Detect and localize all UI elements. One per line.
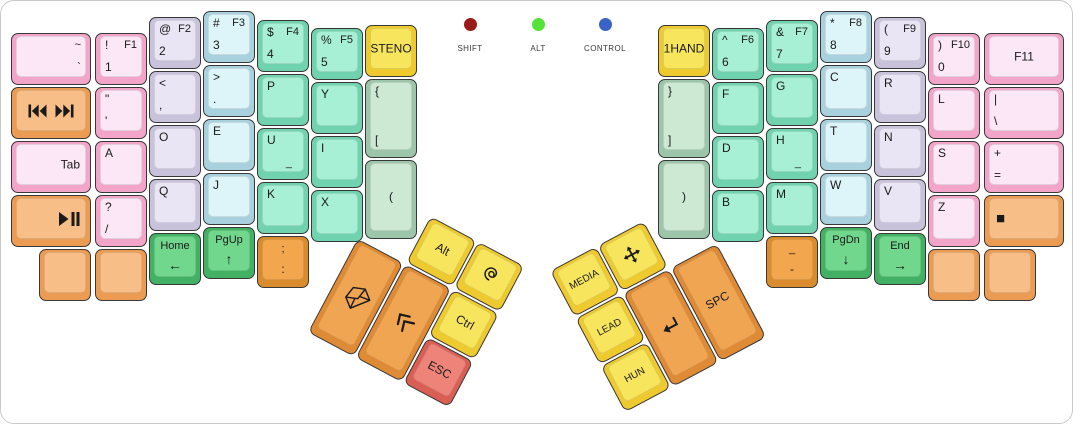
key-1-label: 1 <box>105 61 112 74</box>
key-c-cap: C <box>825 68 867 109</box>
control-led-icon <box>599 18 612 31</box>
key-rparen-cap: ) <box>663 163 705 231</box>
key-pgup-cap: PgUp↑ <box>208 230 250 271</box>
key-c[interactable]: C <box>820 65 872 117</box>
key-slash-label: / <box>105 223 108 236</box>
key-comma-label: , <box>159 99 162 112</box>
key-v-label: V <box>884 185 892 198</box>
key-alt-cap: Alt <box>414 221 470 277</box>
key-w-label: W <box>830 179 841 192</box>
key-4[interactable]: $F44 <box>257 20 309 72</box>
key-h-cap: H_ <box>771 131 813 172</box>
debian-swirl-icon <box>477 262 503 288</box>
key-k-label: K <box>267 188 275 201</box>
key-spc-label: SPC <box>703 289 731 312</box>
key-u-cap: U_ <box>262 131 304 172</box>
key-media-label: MEDIA <box>567 267 600 292</box>
key-super-cap <box>462 247 518 303</box>
key-m[interactable]: M <box>766 182 818 234</box>
key-apostrophe-label: " <box>105 93 109 106</box>
key-4-label: $ <box>267 26 274 39</box>
key-end-label: → <box>893 258 907 273</box>
key-pgdn-label: PgDn <box>832 234 860 246</box>
key-7[interactable]: &F77 <box>766 20 818 72</box>
indicator-control-label: CONTROL <box>570 44 640 53</box>
key-u-label: _ <box>286 157 292 169</box>
key-1-cap: !F11 <box>100 36 142 77</box>
key-z-label: Z <box>938 201 945 214</box>
key-5-label: 5 <box>321 56 328 69</box>
key-z[interactable]: Z <box>928 195 980 247</box>
key-q[interactable]: Q <box>149 179 201 231</box>
key-m-label: M <box>776 188 786 201</box>
key-1-label: F1 <box>124 39 137 51</box>
key-steno-label: STENO <box>370 42 411 55</box>
key-f11-label: F11 <box>1014 50 1034 63</box>
key-x-label: X <box>321 196 329 209</box>
key-pgdn-cap: PgDn↓ <box>825 230 867 271</box>
key-6[interactable]: ^F66 <box>712 28 764 80</box>
key-pgdn[interactable]: PgDn↓ <box>820 227 872 279</box>
key-blank-r1[interactable] <box>928 249 980 301</box>
key-m-cap: M <box>771 185 813 226</box>
key-6-cap: ^F66 <box>717 31 759 72</box>
double-chevron-icon <box>389 306 419 336</box>
key-rbrace[interactable]: }] <box>658 79 710 158</box>
key-home-cap: Home← <box>154 236 196 277</box>
key-t[interactable]: T <box>820 119 872 171</box>
key-home-label: Home <box>160 240 189 252</box>
key-1hand[interactable]: 1HAND <box>658 25 710 77</box>
key-pgdn-label: ↓ <box>843 252 850 267</box>
key-n-cap: N <box>879 128 921 169</box>
key-underscore-label: - <box>790 263 794 276</box>
key-u-label: U <box>267 134 276 147</box>
key-0-label: 0 <box>938 61 945 74</box>
key-apostrophe[interactable]: "' <box>95 87 147 139</box>
key-v[interactable]: V <box>874 179 926 231</box>
key-6-label: 6 <box>722 56 729 69</box>
key-equals-cap: += <box>989 144 1059 185</box>
key-play-pause-cap <box>16 198 86 239</box>
enter-return-icon <box>658 315 682 337</box>
key-lparen[interactable]: ( <box>365 160 417 239</box>
key-f[interactable]: F <box>712 82 764 134</box>
key-apostrophe-cap: "' <box>100 90 142 131</box>
key-blank-l2-cap <box>100 252 142 293</box>
key-0-cap: )F100 <box>933 36 975 77</box>
key-t-label: T <box>830 125 837 138</box>
key-0-label: ) <box>938 39 942 52</box>
key-end-label: End <box>890 240 910 252</box>
key-1[interactable]: !F11 <box>95 33 147 85</box>
key-2-label: @ <box>159 23 171 36</box>
key-rparen-label: ) <box>682 190 686 203</box>
key-j-label: J <box>213 179 219 192</box>
key-g-cap: G <box>771 77 813 118</box>
key-e-label: E <box>213 125 221 138</box>
key-2[interactable]: @F22 <box>149 17 201 69</box>
key-o-cap: O <box>154 128 196 169</box>
key-0[interactable]: )F100 <box>928 33 980 85</box>
key-d-label: D <box>722 142 731 155</box>
key-2-label: F2 <box>178 23 191 35</box>
key-i-cap: I <box>316 139 358 180</box>
key-backslash-cap: |\ <box>989 90 1059 131</box>
key-j[interactable]: J <box>203 173 255 225</box>
key-steno[interactable]: STENO <box>365 25 417 77</box>
key-home[interactable]: Home← <box>149 233 201 285</box>
key-blank-l2[interactable] <box>95 249 147 301</box>
key-f-label: F <box>722 88 729 101</box>
key-i-label: I <box>321 142 324 155</box>
alt-led-icon <box>532 18 545 31</box>
key-o[interactable]: O <box>149 125 201 177</box>
key-h-label: _ <box>795 157 801 169</box>
envelope-icon <box>341 281 372 310</box>
key-s[interactable]: S <box>928 141 980 193</box>
key-d[interactable]: D <box>712 136 764 188</box>
key-6-label: ^ <box>722 34 728 47</box>
key-9-cap: (F99 <box>879 20 921 61</box>
key-tab[interactable]: Tab <box>11 141 91 193</box>
key-3-label: 3 <box>213 39 220 52</box>
key-rbrace-cap: }] <box>663 82 705 150</box>
key-1hand-label: 1HAND <box>664 42 705 55</box>
key-n[interactable]: N <box>874 125 926 177</box>
key-rbrace-label: } <box>668 85 672 98</box>
key-h[interactable]: H_ <box>766 128 818 180</box>
key-5-label: F5 <box>340 34 353 46</box>
key-comma-label: < <box>159 77 166 90</box>
key-l-cap: L <box>933 90 975 131</box>
key-backslash-label: | <box>994 93 997 106</box>
key-grave-cap: ~` <box>16 36 86 77</box>
key-end[interactable]: End→ <box>874 233 926 285</box>
key-media-prev-next-icons <box>29 104 74 117</box>
key-media-cap: MEDIA <box>556 252 612 308</box>
key-b-label: B <box>722 196 730 209</box>
key-3-label: F3 <box>232 17 245 29</box>
key-ctrl-label: Ctrl <box>454 312 477 332</box>
key-period[interactable]: >. <box>203 65 255 117</box>
key-tab-cap: Tab <box>16 144 86 185</box>
key-x-cap: X <box>316 193 358 234</box>
key-3-cap: #F33 <box>208 14 250 55</box>
key-y[interactable]: Y <box>311 82 363 134</box>
key-0-label: F10 <box>951 39 970 51</box>
next-track-icon <box>56 104 74 117</box>
indicator-alt: ALT <box>503 18 573 53</box>
key-backslash[interactable]: |\ <box>984 87 1064 139</box>
move-icon <box>619 241 645 267</box>
key-lead-label: LEAD <box>595 316 623 338</box>
key-stop-label: ■ <box>996 210 1005 227</box>
key-1hand-cap: 1HAND <box>663 28 705 69</box>
key-semicolon-cap: ;: <box>262 239 304 280</box>
key-2-label: 2 <box>159 45 166 58</box>
key-period-label: > <box>213 71 220 84</box>
key-a-cap: A <box>100 144 142 185</box>
key-underscore-label: _ <box>789 243 795 255</box>
key-7-label: & <box>776 26 784 39</box>
key-lbrace-label: { <box>375 85 379 98</box>
key-blank-r1-cap <box>933 252 975 293</box>
key-4-cap: $F44 <box>262 23 304 64</box>
key-move-cap <box>604 226 660 282</box>
key-l[interactable]: L <box>928 87 980 139</box>
key-s-cap: S <box>933 144 975 185</box>
key-slash-cap: ?/ <box>100 198 142 239</box>
key-t-cap: T <box>825 122 867 163</box>
key-stop[interactable]: ■ <box>984 195 1064 247</box>
key-p[interactable]: P <box>257 74 309 126</box>
key-g-label: G <box>776 80 785 93</box>
key-comma[interactable]: <, <box>149 71 201 123</box>
key-9-label: 9 <box>884 45 891 58</box>
key-6-label: F6 <box>741 34 754 46</box>
key-v-cap: V <box>879 182 921 223</box>
key-underscore-cap: _- <box>771 239 813 280</box>
key-2-cap: @F22 <box>154 20 196 61</box>
indicator-shift: SHIFT <box>435 18 505 53</box>
indicator-alt-label: ALT <box>503 44 573 53</box>
key-f11-cap: F11 <box>989 36 1059 77</box>
key-equals-label: + <box>994 147 1001 160</box>
key-7-cap: &F77 <box>771 23 813 64</box>
key-r-cap: R <box>879 74 921 115</box>
key-8[interactable]: *F88 <box>820 11 872 63</box>
key-blank-l1[interactable] <box>39 249 91 301</box>
key-tab-label: Tab <box>61 158 80 171</box>
key-h-label: H <box>776 134 785 147</box>
key-equals[interactable]: += <box>984 141 1064 193</box>
key-end-cap: End→ <box>879 236 921 277</box>
key-period-label: . <box>213 93 216 106</box>
indicator-control: CONTROL <box>570 18 640 53</box>
key-hun-label: HUN <box>623 365 647 385</box>
key-grave-label: ` <box>77 61 81 74</box>
key-backslash-label: \ <box>994 115 997 128</box>
key-k[interactable]: K <box>257 182 309 234</box>
key-8-label: F8 <box>849 17 862 29</box>
key-e[interactable]: E <box>203 119 255 171</box>
key-n-label: N <box>884 131 893 144</box>
key-lbrace-cap: {[ <box>370 82 412 150</box>
key-media-prev-next[interactable] <box>11 87 91 139</box>
key-pgup-label: ↑ <box>226 252 233 267</box>
key-c-label: C <box>830 71 839 84</box>
key-slash-label: ? <box>105 201 112 214</box>
key-i[interactable]: I <box>311 136 363 188</box>
key-lparen-cap: ( <box>370 163 412 231</box>
key-x[interactable]: X <box>311 190 363 242</box>
key-lbrace-label: [ <box>375 134 378 147</box>
key-esc-label: ESC <box>426 358 454 381</box>
key-u[interactable]: U_ <box>257 128 309 180</box>
key-g[interactable]: G <box>766 74 818 126</box>
key-blank-r2-cap <box>989 252 1031 293</box>
key-7-label: 7 <box>776 48 783 61</box>
key-s-label: S <box>938 147 946 160</box>
key-8-label: * <box>830 17 835 30</box>
key-b-cap: B <box>717 193 759 234</box>
key-r-label: R <box>884 77 893 90</box>
key-y-cap: Y <box>316 85 358 126</box>
key-4-label: F4 <box>286 26 299 38</box>
key-5-label: % <box>321 34 332 47</box>
key-1-label: ! <box>105 39 108 52</box>
key-a-label: A <box>105 147 113 160</box>
key-q-label: Q <box>159 185 168 198</box>
key-k-cap: K <box>262 185 304 226</box>
key-b[interactable]: B <box>712 190 764 242</box>
key-period-cap: >. <box>208 68 250 109</box>
key-semicolon-label: ; <box>281 243 284 255</box>
indicator-shift-label: SHIFT <box>435 44 505 53</box>
key-play-pause[interactable] <box>11 195 91 247</box>
key-r[interactable]: R <box>874 71 926 123</box>
key-comma-cap: <, <box>154 74 196 115</box>
key-f-cap: F <box>717 85 759 126</box>
key-alt-label: Alt <box>433 240 452 258</box>
key-f11[interactable]: F11 <box>984 33 1064 85</box>
key-q-cap: Q <box>154 182 196 223</box>
key-w[interactable]: W <box>820 173 872 225</box>
key-blank-r2[interactable] <box>984 249 1036 301</box>
keyboard-layout-canvas: SHIFTALTCONTROL ~`Tab!F11"'A?/@F22<,OQ#F… <box>0 0 1073 424</box>
key-w-cap: W <box>825 176 867 217</box>
key-pgup[interactable]: PgUp↑ <box>203 227 255 279</box>
key-3-label: # <box>213 17 220 30</box>
key-a[interactable]: A <box>95 141 147 193</box>
key-media-prev-next-cap <box>16 90 86 131</box>
key-j-cap: J <box>208 176 250 217</box>
key-lparen-label: ( <box>389 190 393 203</box>
key-underscore[interactable]: _- <box>766 236 818 288</box>
key-9[interactable]: (F99 <box>874 17 926 69</box>
key-z-cap: Z <box>933 198 975 239</box>
key-y-label: Y <box>321 88 329 101</box>
key-5-cap: %F55 <box>316 31 358 72</box>
key-semicolon[interactable]: ;: <box>257 236 309 288</box>
key-rparen[interactable]: ) <box>658 160 710 239</box>
key-p-cap: P <box>262 77 304 118</box>
key-apostrophe-label: ' <box>105 115 107 128</box>
key-7-label: F7 <box>795 26 808 38</box>
key-d-cap: D <box>717 139 759 180</box>
key-3[interactable]: #F33 <box>203 11 255 63</box>
key-blank-l1-cap <box>44 252 86 293</box>
key-l-label: L <box>938 93 945 106</box>
key-8-label: 8 <box>830 39 837 52</box>
key-rbrace-label: ] <box>668 134 671 147</box>
key-stop-cap: ■ <box>989 198 1059 239</box>
key-p-label: P <box>267 80 275 93</box>
key-9-label: F9 <box>903 23 916 35</box>
key-pgup-label: PgUp <box>215 234 243 246</box>
key-8-cap: *F88 <box>825 14 867 55</box>
key-e-cap: E <box>208 122 250 163</box>
key-slash[interactable]: ?/ <box>95 195 147 247</box>
key-o-label: O <box>159 131 168 144</box>
key-steno-cap: STENO <box>370 28 412 69</box>
key-grave[interactable]: ~` <box>11 33 91 85</box>
play-pause-icon <box>59 212 80 226</box>
key-4-label: 4 <box>267 48 274 61</box>
key-5[interactable]: %F55 <box>311 28 363 80</box>
key-grave-label: ~ <box>75 39 81 51</box>
key-9-label: ( <box>884 23 888 36</box>
key-equals-label: = <box>994 169 1001 182</box>
key-home-label: ← <box>168 258 182 273</box>
key-semicolon-label: : <box>281 263 284 276</box>
shift-led-icon <box>464 18 477 31</box>
prev-track-icon <box>29 104 47 117</box>
key-lbrace[interactable]: {[ <box>365 79 417 158</box>
